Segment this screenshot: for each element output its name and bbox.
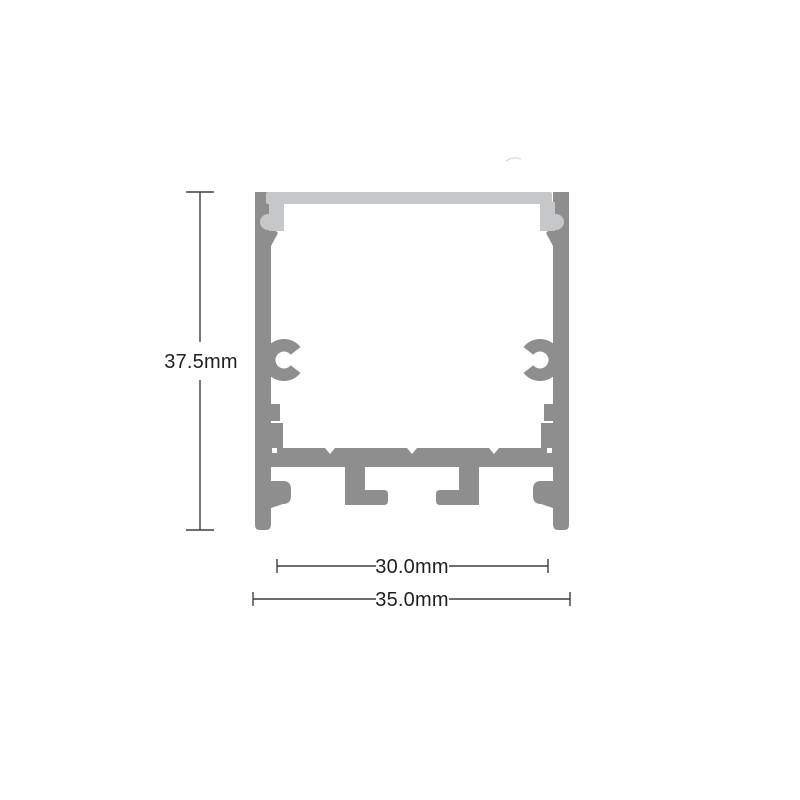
- height-dimension-label: 37.5mm: [164, 351, 237, 373]
- dimension-labels: 37.5mm 30.0mm 35.0mm: [164, 351, 448, 611]
- diffuser-left-clip-bulge: [260, 214, 276, 230]
- plate-end-notch-right: [547, 448, 552, 453]
- left-wall-tooth-upper: [271, 404, 280, 421]
- right-t-slot-leg: [436, 467, 479, 505]
- diffuser-cover: [260, 192, 564, 231]
- left-wall-hook: [271, 481, 291, 508]
- left-wall-tooth-lower: [271, 423, 283, 449]
- right-wall-tooth-lower: [541, 423, 553, 449]
- right-wall-tooth-upper: [544, 404, 553, 421]
- profile-cross-section-drawing: 37.5mm 30.0mm 35.0mm: [0, 0, 800, 800]
- left-t-slot-leg: [345, 467, 388, 505]
- right-wall-hook: [533, 481, 553, 508]
- outer-width-dimension-label: 35.0mm: [375, 589, 448, 611]
- plate-end-notch-left: [272, 448, 277, 453]
- diffuser-top-panel: [266, 192, 552, 204]
- aluminum-profile-body: [255, 192, 569, 530]
- faint-artifact-mark: [506, 158, 521, 161]
- diffuser-right-clip-bulge: [548, 214, 564, 230]
- drawing-page: 37.5mm 30.0mm 35.0mm: [0, 0, 800, 800]
- dimension-lines: [186, 192, 570, 606]
- inner-width-dimension-label: 30.0mm: [375, 556, 448, 578]
